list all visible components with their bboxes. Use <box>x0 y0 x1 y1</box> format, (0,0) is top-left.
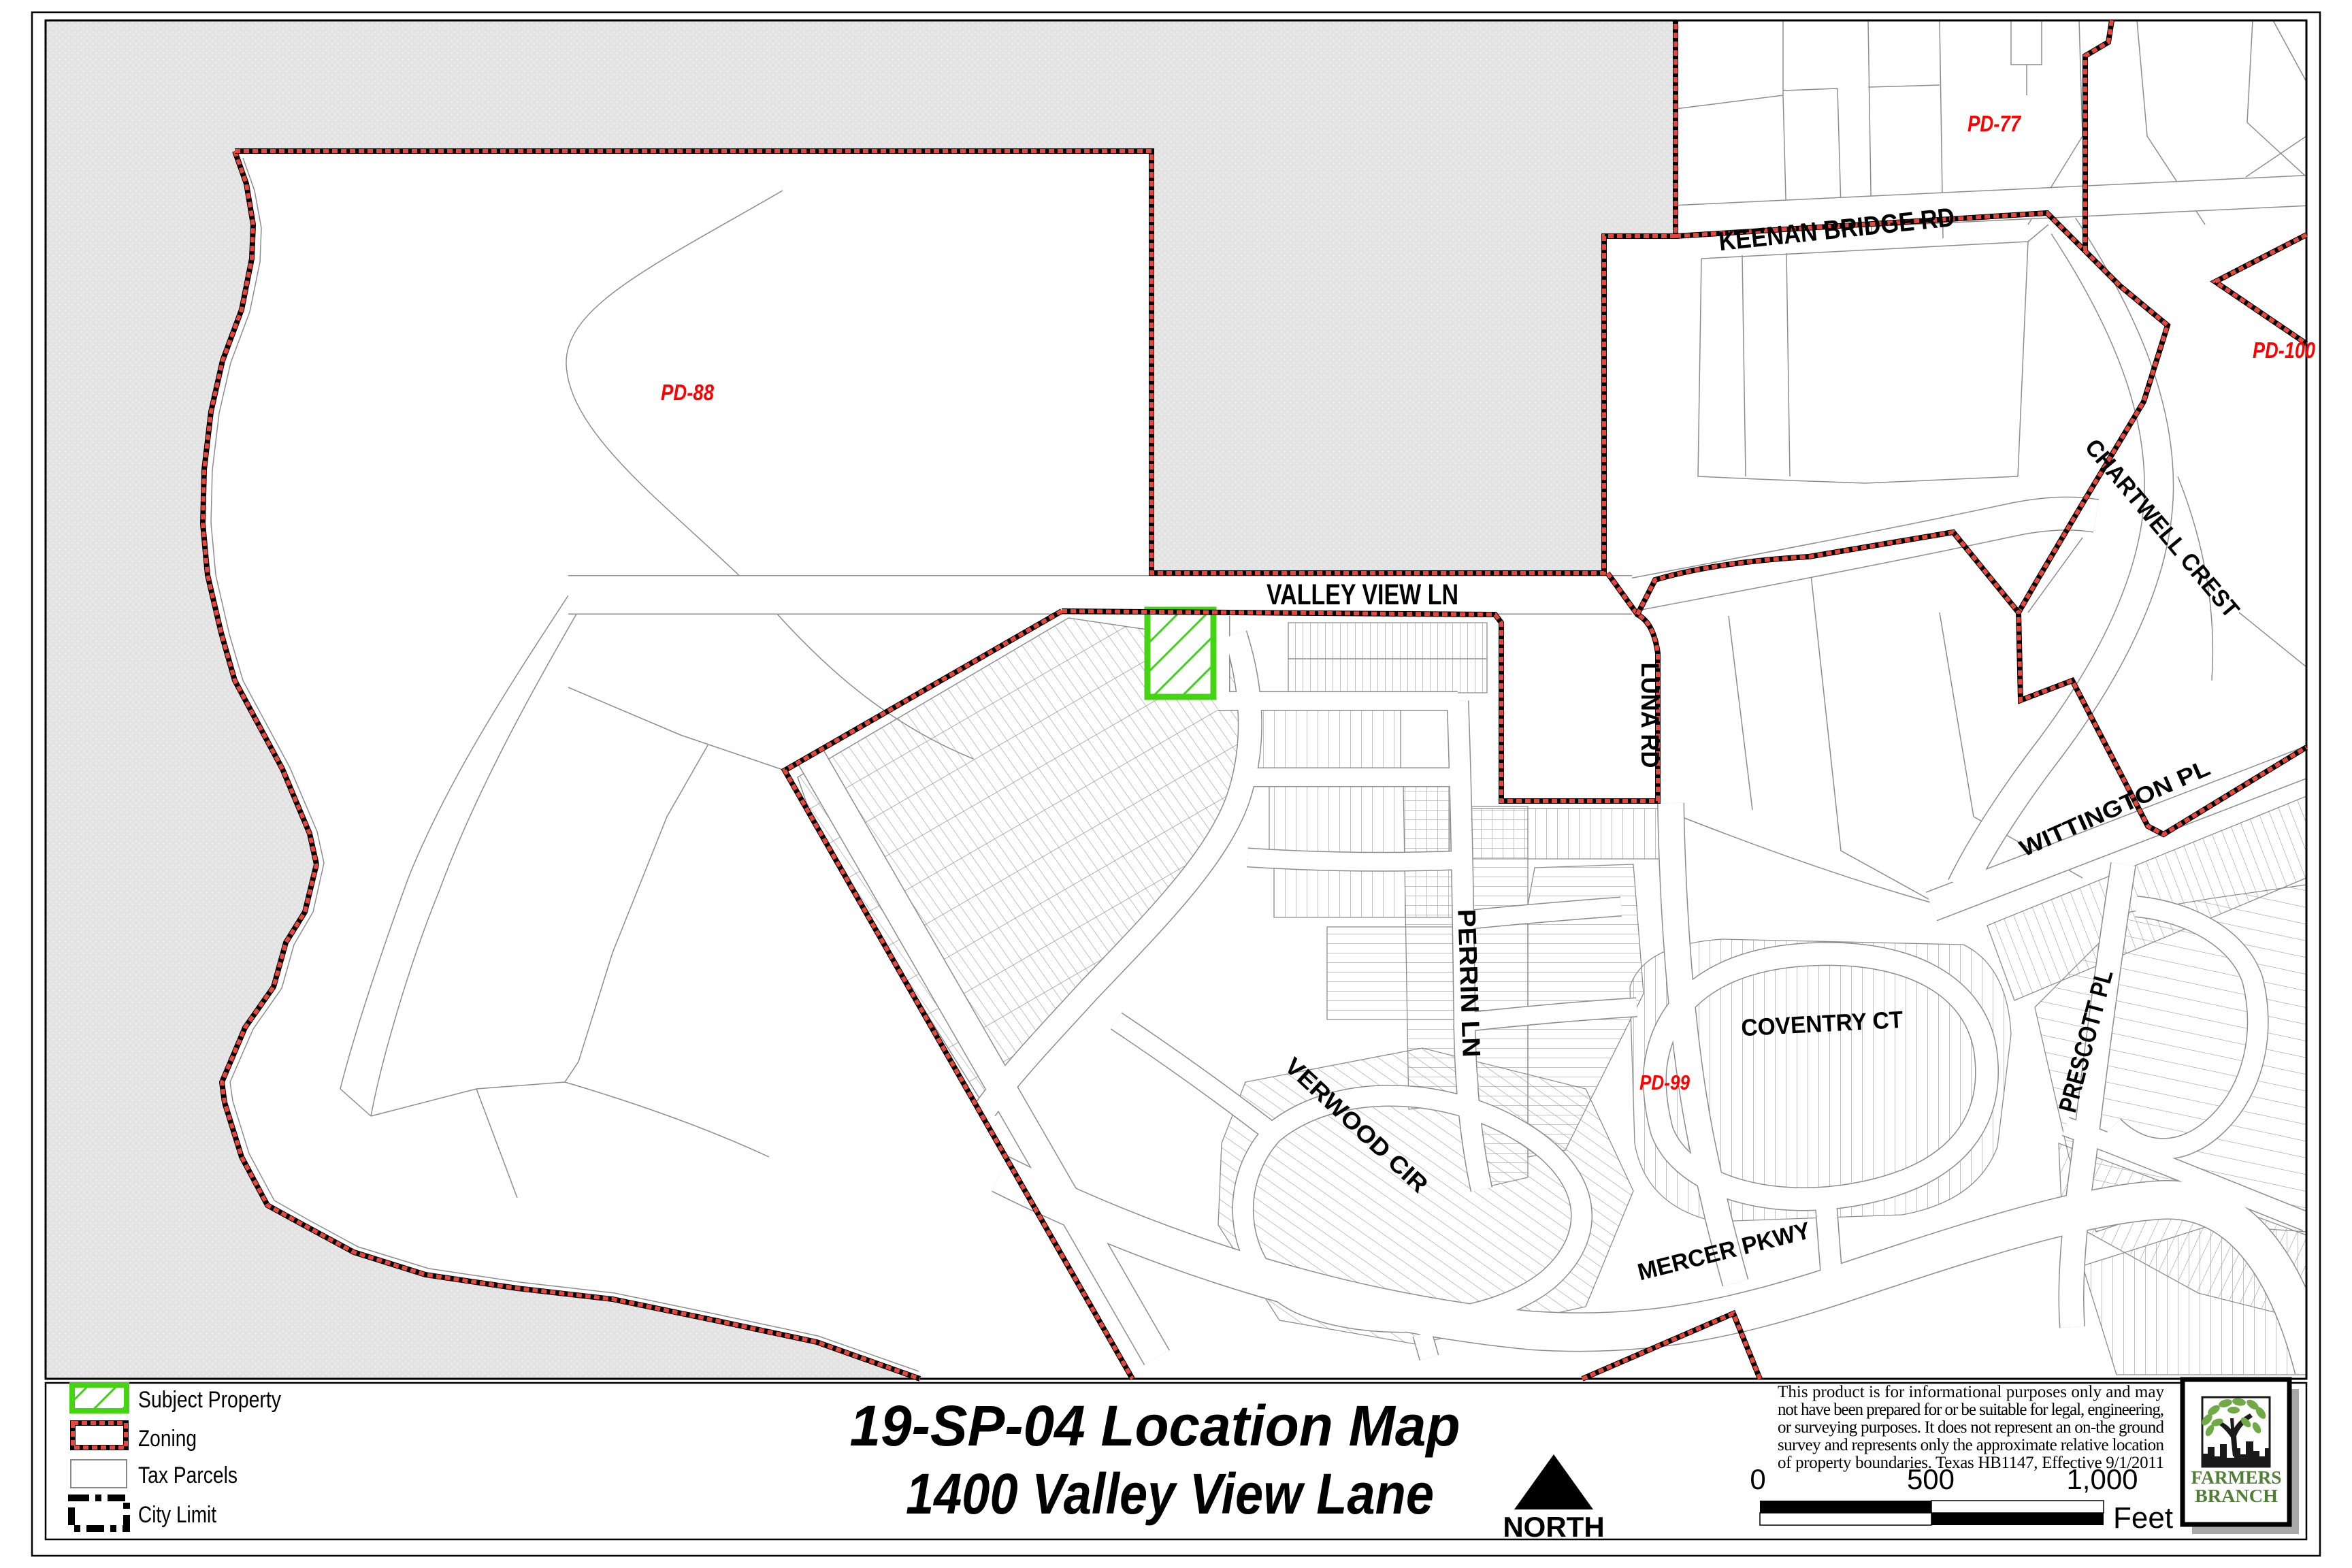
svg-text:PD-88: PD-88 <box>661 380 715 405</box>
svg-text:LUNA RD: LUNA RD <box>1636 663 1664 768</box>
svg-text:BRANCH: BRANCH <box>2195 1486 2278 1506</box>
svg-text:or surveying purposes. It does: or surveying purposes. It does not repre… <box>1778 1418 2165 1437</box>
svg-text:of property boundaries. T: of property boundaries. Texas HB1147, Ef… <box>1778 1454 2164 1472</box>
svg-text:Feet: Feet <box>2113 1501 2173 1535</box>
svg-text:0: 0 <box>1750 1463 1765 1495</box>
svg-text:PD-77: PD-77 <box>1967 111 2021 136</box>
svg-text:VALLEY VIEW LN: VALLEY VIEW LN <box>1267 578 1458 611</box>
svg-text:19-SP-04 Location Map: 19-SP-04 Location Map <box>850 1394 1460 1458</box>
svg-text:City Limit: City Limit <box>138 1502 216 1528</box>
svg-text:PERRIN LN: PERRIN LN <box>1452 909 1486 1058</box>
svg-text:Tax Parcels: Tax Parcels <box>138 1463 238 1488</box>
svg-text:not have been prepared for or: not have been prepared for or be suitabl… <box>1778 1401 2164 1419</box>
svg-text:PD-100: PD-100 <box>2253 338 2316 363</box>
svg-text:PD-99: PD-99 <box>1639 1071 1690 1094</box>
svg-text:FARMERS: FARMERS <box>2191 1467 2282 1488</box>
svg-text:Zoning: Zoning <box>138 1426 197 1452</box>
svg-text:NORTH: NORTH <box>1503 1511 1604 1543</box>
svg-text:This product is for informatio: This product is for informational purpos… <box>1778 1383 2165 1401</box>
svg-text:1400 Valley View Lane: 1400 Valley View Lane <box>906 1462 1434 1526</box>
svg-text:survey and represents only the: survey and represents only the approxima… <box>1778 1436 2165 1454</box>
svg-text:Subject Property: Subject Property <box>138 1387 281 1413</box>
